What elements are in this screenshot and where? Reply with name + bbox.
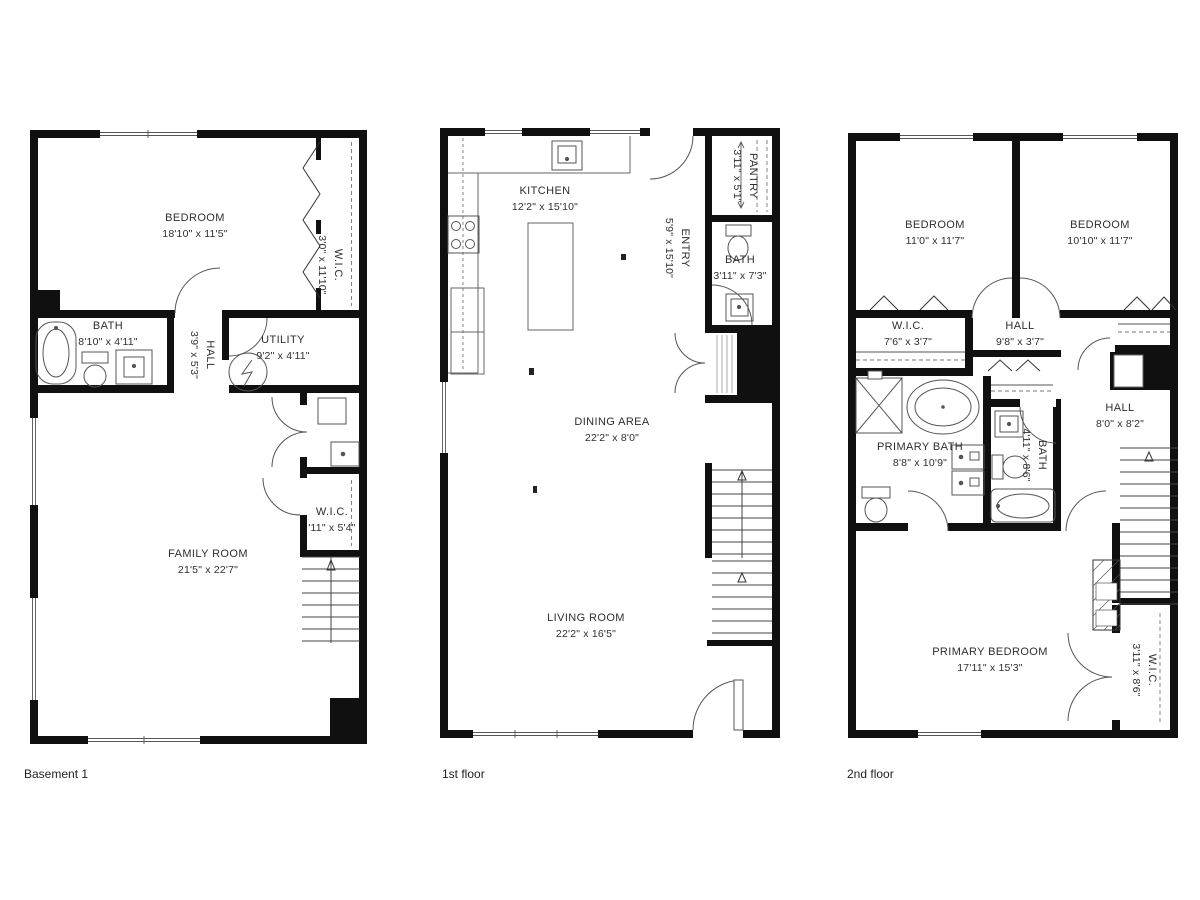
room-name: FAMILY ROOM [168, 546, 248, 563]
room-dims: 18'10" x 11'5" [162, 226, 227, 242]
room-name: PRIMARY BEDROOM [932, 644, 1048, 661]
bathtub-icon [36, 322, 76, 384]
room-name: PRIMARY BATH [877, 439, 963, 456]
room-name: W.I.C. [308, 504, 355, 521]
room-label-wic-2: W.I.C. '11" x 5'4" [308, 504, 355, 536]
laundry-sink-icon [318, 398, 359, 466]
room-label-hall-2: HALL 8'0" x 8'2" [1096, 400, 1144, 432]
room-dims: 9'8" x 3'7" [996, 334, 1044, 350]
kitchen-counter [448, 136, 630, 373]
room-dims: 3'11" x 5'1" [729, 149, 745, 202]
kitchen-sink-icon [552, 141, 582, 170]
toilet-icon [862, 487, 890, 522]
room-name: HALL [202, 331, 219, 379]
room-label-kitchen: KITCHEN 12'2" x 15'10" [512, 183, 578, 215]
room-dims: 8'10" x 4'11" [78, 334, 137, 350]
room-label-utility: UTILITY 9'2" x 4'11" [256, 332, 309, 364]
room-name: LIVING ROOM [547, 610, 625, 627]
kitchen-island [528, 223, 573, 330]
room-name: HALL [996, 318, 1044, 335]
room-name: UTILITY [256, 332, 309, 349]
room-dims: '11" x 5'4" [308, 520, 355, 536]
room-name: HALL [1096, 400, 1144, 417]
room-dims: 7'6" x 3'7" [884, 334, 932, 350]
room-label-family-room: FAMILY ROOM 21'5" x 22'7" [168, 546, 248, 578]
room-label-primary-bath: PRIMARY BATH 8'8" x 10'9" [877, 439, 963, 471]
floorplan-basement: BEDROOM 18'10" x 11'5" W.I.C. 3'0" x 11'… [30, 130, 367, 744]
room-label-entry: ENTRY 5'9" x 15'10" [661, 218, 693, 278]
room-name: ENTRY [677, 218, 694, 278]
bathtub-icon [907, 380, 979, 434]
floorplan-1st-floor: KITCHEN 12'2" x 15'10" PANTRY 3'11" x 5'… [440, 128, 780, 738]
room-name: BEDROOM [1067, 217, 1132, 234]
shower-icon [856, 371, 902, 433]
room-dims: 22'2" x 8'0" [574, 430, 649, 446]
floorplan-2nd-floor: BEDROOM 11'0" x 11'7" BEDROOM 10'10" x 1… [848, 133, 1178, 738]
room-dims: 3'0" x 11'10" [314, 235, 330, 294]
stairs [1120, 448, 1178, 604]
room-label-bedroom-1: BEDROOM 11'0" x 11'7" [905, 217, 965, 249]
room-name: BATH [78, 318, 137, 335]
sink-icon [726, 294, 753, 321]
room-name: W.I.C. [330, 235, 347, 294]
room-label-bedroom-2: BEDROOM 10'10" x 11'7" [1067, 217, 1132, 249]
room-name: DINING AREA [574, 414, 649, 431]
refrigerator-icon [451, 288, 484, 374]
room-dims: 10'10" x 11'7" [1067, 233, 1132, 249]
room-name: BATH [713, 252, 766, 269]
room-dims: 3'11" x 8'6" [1128, 643, 1144, 696]
room-dims: 22'2" x 16'5" [547, 626, 625, 642]
room-name: BEDROOM [905, 217, 965, 234]
room-label-primary-bedroom: PRIMARY BEDROOM 17'11" x 15'3" [932, 644, 1048, 676]
floor-caption-1st-floor: 1st floor [442, 767, 485, 781]
room-label-bedroom: BEDROOM 18'10" x 11'5" [162, 210, 227, 242]
floor-caption-basement: Basement 1 [24, 767, 88, 781]
room-label-wic-2: W.I.C. 3'11" x 8'6" [1128, 643, 1160, 696]
room-label-wic: W.I.C. 3'0" x 11'10" [314, 235, 346, 294]
bathtub-icon-2 [991, 489, 1055, 522]
room-label-hall: HALL 3'9" x 5'3" [186, 331, 218, 379]
laundry-shaft [1114, 355, 1143, 387]
room-label-pantry: PANTRY 3'11" x 5'1" [729, 149, 761, 202]
room-label-bath: BATH 3'11" x 7'3" [713, 252, 766, 284]
room-dims: 12'2" x 15'10" [512, 199, 578, 215]
floorplan-sheet: BEDROOM 18'10" x 11'5" W.I.C. 3'0" x 11'… [0, 0, 1200, 900]
room-label-bath: BATH 4'11" x 8'6" [1018, 428, 1050, 481]
room-dims: 4'11" x 8'6" [1018, 428, 1034, 481]
room-dims: 3'11" x 7'3" [713, 268, 766, 284]
room-name: KITCHEN [512, 183, 578, 200]
room-dims: 8'8" x 10'9" [877, 455, 963, 471]
room-name: W.I.C. [884, 318, 932, 335]
stove-icon [448, 216, 479, 253]
stairs [712, 470, 772, 633]
room-dims: 11'0" x 11'7" [905, 233, 965, 249]
room-dims: 3'9" x 5'3" [186, 331, 202, 379]
room-label-wic-1: W.I.C. 7'6" x 3'7" [884, 318, 932, 350]
room-label-hall-1: HALL 9'8" x 3'7" [996, 318, 1044, 350]
room-label-bath: BATH 8'10" x 4'11" [78, 318, 137, 350]
stairs [302, 557, 360, 643]
room-dims: 17'11" x 15'3" [932, 660, 1048, 676]
room-dims: 5'9" x 15'10" [661, 218, 677, 278]
room-dims: 21'5" x 22'7" [168, 562, 248, 578]
floor-caption-2nd-floor: 2nd floor [847, 767, 894, 781]
room-dims: 8'0" x 8'2" [1096, 416, 1144, 432]
room-dims: 9'2" x 4'11" [256, 348, 309, 364]
room-name: W.I.C. [1144, 643, 1161, 696]
floor-marks [529, 254, 626, 493]
sink-icon [116, 350, 152, 384]
toilet-icon [82, 352, 108, 387]
closet-shelving [717, 335, 732, 393]
room-label-living-room: LIVING ROOM 22'2" x 16'5" [547, 610, 625, 642]
room-name: BEDROOM [162, 210, 227, 227]
room-label-dining-area: DINING AREA 22'2" x 8'0" [574, 414, 649, 446]
room-name: PANTRY [745, 149, 762, 202]
room-name: BATH [1034, 428, 1051, 481]
